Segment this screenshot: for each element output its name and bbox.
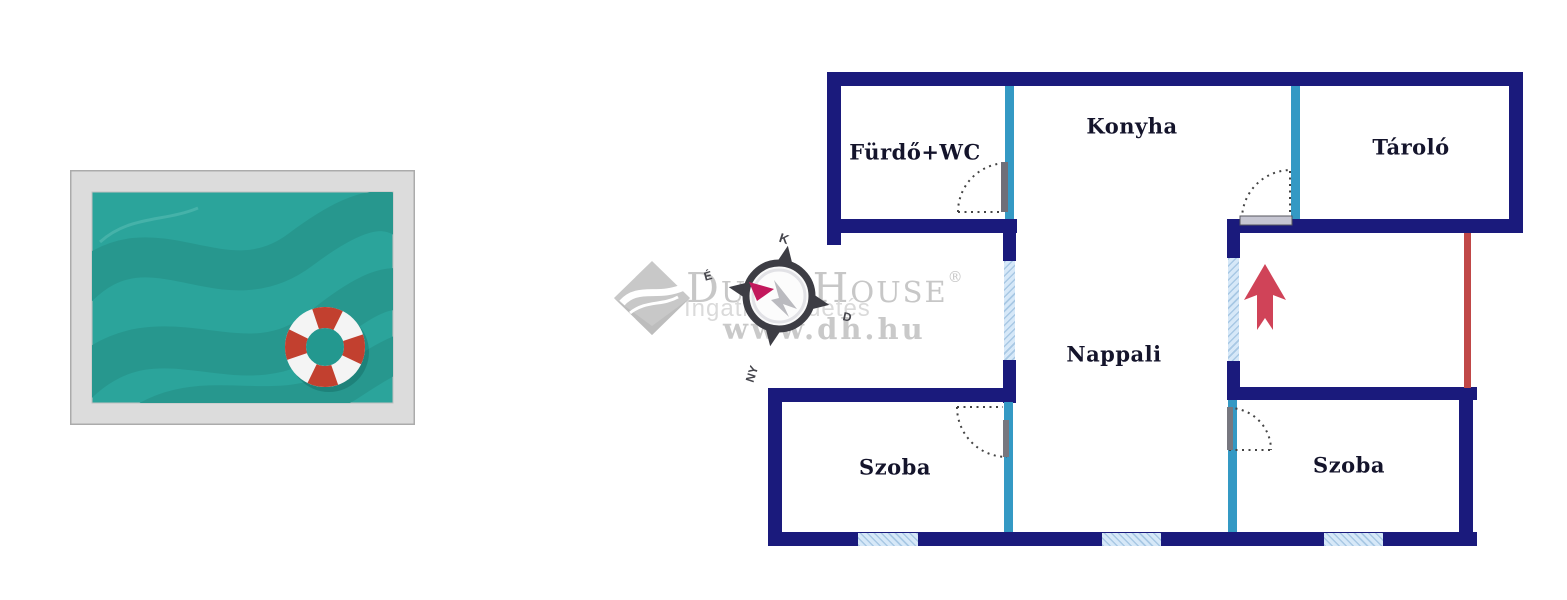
room-label-living: Nappali (1066, 342, 1161, 367)
room-label-kitchen: Konyha (1086, 114, 1177, 139)
wall-room2-top (1232, 387, 1477, 400)
window-living-left (1004, 261, 1015, 360)
compass-label-bottom: NY (743, 364, 761, 384)
watermark-url: www.dh.hu (723, 315, 926, 344)
door-room1 (957, 407, 1009, 457)
partition-room2-living (1228, 400, 1237, 532)
window-room2-bottom (1324, 533, 1383, 546)
wall-bathroom-bottom (827, 219, 1017, 233)
lifebuoy-hole (306, 328, 344, 366)
door-entrance (1240, 170, 1292, 225)
window-living-bottom (1102, 533, 1161, 546)
window-living-right (1228, 258, 1239, 361)
door-bathroom (958, 162, 1008, 212)
entrance-arrow-icon (1244, 264, 1286, 330)
wall-top-outer (827, 72, 1523, 86)
room-label-bathroom: Fürdő+WC (849, 140, 980, 165)
lifebuoy (289, 312, 369, 392)
compass-label-top: K (777, 230, 791, 247)
room-label-room1: Szoba (859, 455, 931, 480)
dunahouse-logo-icon (614, 261, 690, 335)
room-label-room2: Szoba (1313, 453, 1385, 478)
window-room1-bottom (858, 533, 918, 546)
registered-mark: ® (948, 268, 963, 286)
wall-room1-left (768, 402, 782, 546)
wall-right-outer (1509, 72, 1523, 233)
partition-bathroom-kitchen (1005, 86, 1014, 219)
wall-living-left-upper (1003, 233, 1016, 261)
wall-room2-right (1459, 400, 1473, 532)
pool-illustration (70, 170, 415, 425)
wall-living-right-upper (1227, 233, 1240, 258)
wall-kitchen-storage-bottom (1227, 219, 1523, 233)
terrace-edge-line (1464, 233, 1471, 388)
partition-kitchen-storage (1291, 86, 1300, 219)
wall-room1-top (768, 388, 1014, 402)
partition-room1-living (1004, 402, 1013, 532)
room-label-storage: Tároló (1372, 135, 1449, 160)
listing-image: Duna House® Ingatlanhirdetés www.dh.hu F… (0, 0, 1567, 600)
